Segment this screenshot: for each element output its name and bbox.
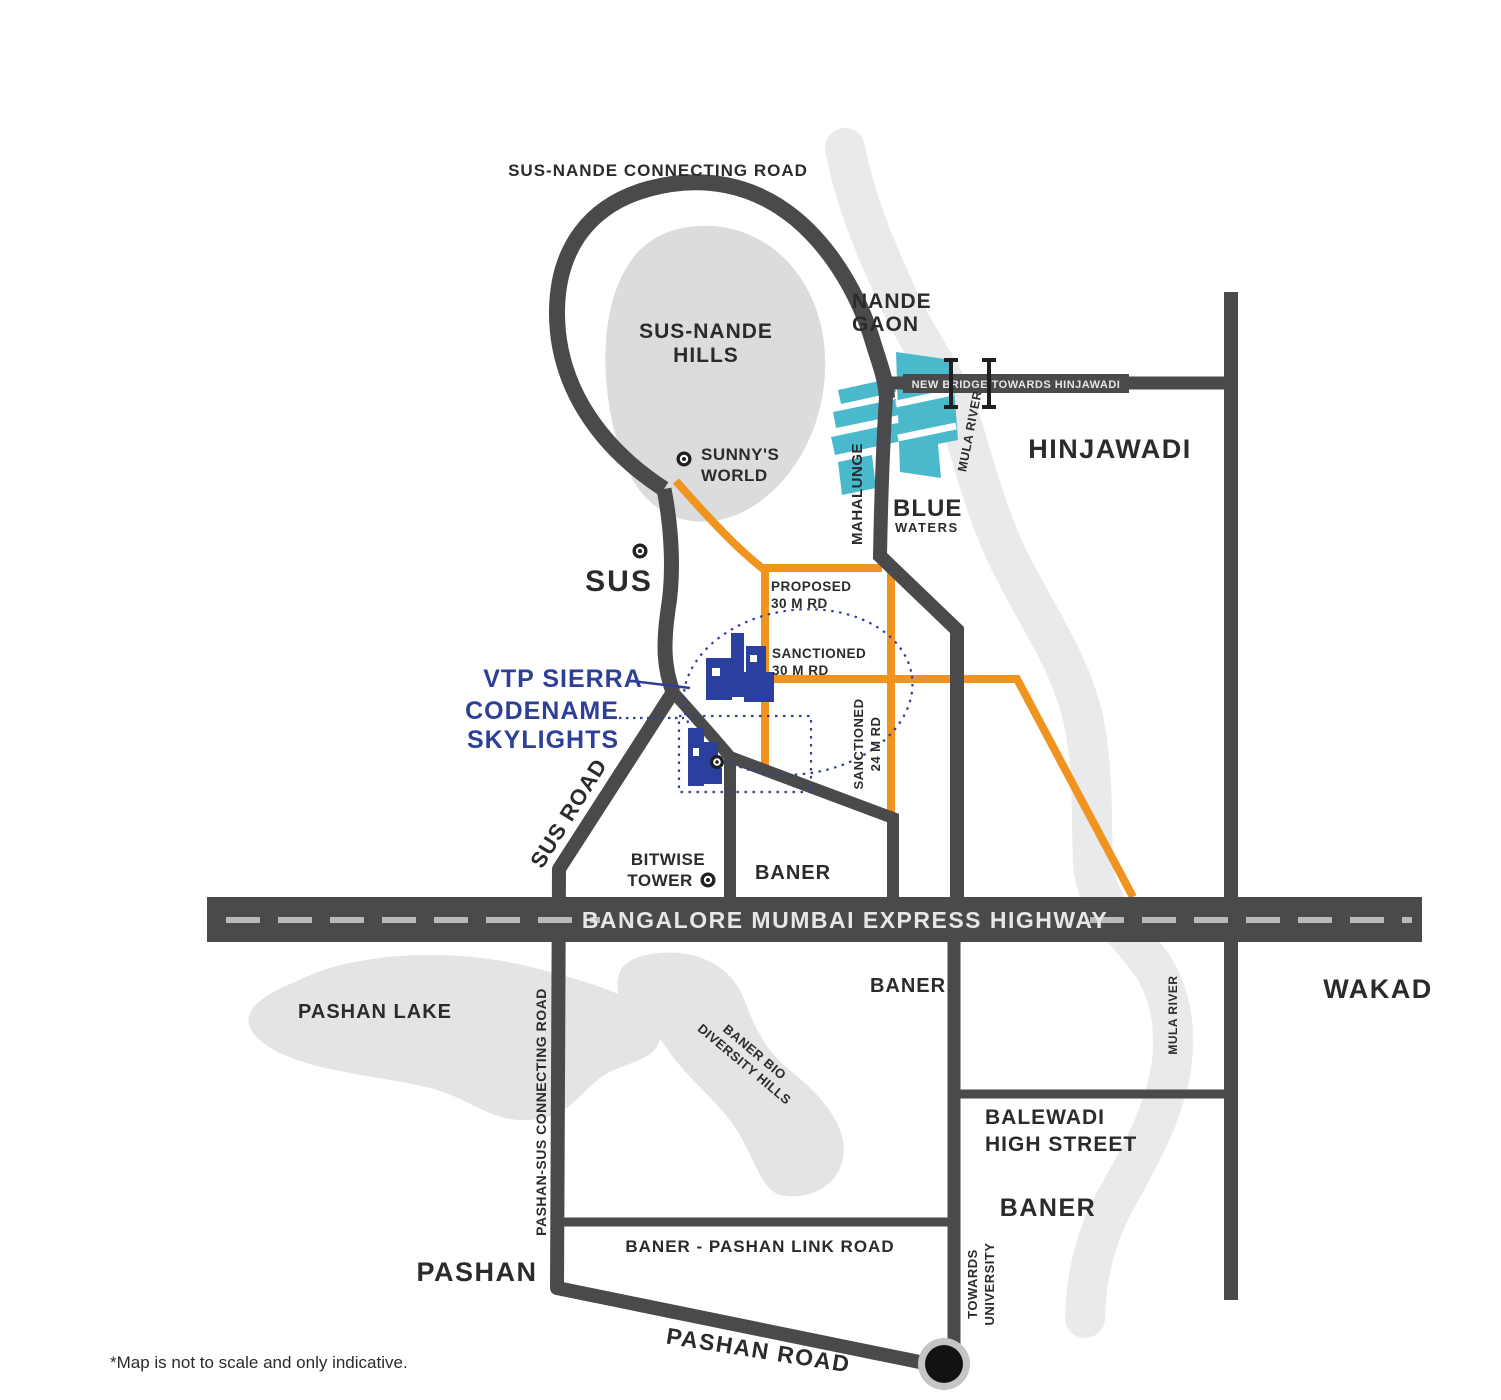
sus-label: SUS [585, 565, 653, 598]
baner-area-label: BANER [1000, 1194, 1096, 1222]
towards-university-label-1: TOWARDS [965, 1249, 980, 1319]
nande-gaon-label-1: NANDE [852, 290, 932, 313]
sus-nande-hills-label-2: HILLS [673, 344, 739, 367]
nande-gaon-label-2: GAON [852, 313, 919, 336]
baner-above-highway-label: BANER [755, 862, 831, 884]
sunnys-world-marker-icon [677, 452, 692, 467]
blue-waters-label-2: WATERS [895, 520, 959, 535]
baner-biodiversity-hills-area [618, 953, 844, 1197]
blue-waters-label-1: BLUE [893, 495, 962, 522]
highway: BANGALORE MUMBAI EXPRESS HIGHWAY [207, 897, 1422, 942]
baner-pashan-link-road-label: BANER - PASHAN LINK ROAD [625, 1237, 894, 1256]
wakad-label: WAKAD [1323, 974, 1433, 1004]
codename-skylights-label-1: CODENAME [465, 697, 619, 725]
blue-waters-stripe-3 [831, 423, 902, 455]
building-block [700, 768, 722, 784]
building-block [744, 672, 774, 702]
pashan-sus-connecting-road-label: PASHAN-SUS CONNECTING ROAD [533, 988, 549, 1236]
balewadi-high-street-label-1: BALEWADI [985, 1106, 1105, 1129]
building-window [693, 748, 699, 756]
location-map: BANGALORE MUMBAI EXPRESS HIGHWAY NEW BRI… [0, 0, 1501, 1400]
sanctioned-30m-label-1: SANCTIONED [772, 646, 866, 661]
sanctioned-24m-label-2: 24 M RD [868, 717, 883, 772]
vtp-sierra-label: VTP SIERRA [483, 665, 643, 693]
building-window [712, 668, 720, 676]
building-block [706, 658, 732, 700]
sunnys-world-label-2: WORLD [701, 466, 768, 485]
location-map-canvas: BANGALORE MUMBAI EXPRESS HIGHWAY NEW BRI… [0, 0, 1501, 1400]
mula-river-lower-label: MULA RIVER [1166, 975, 1180, 1054]
sus-marker-icon [633, 544, 648, 559]
mahalunge-label: MAHALUNGE [849, 443, 866, 545]
bitwise-tower-label-2: TOWER [627, 871, 692, 890]
codename-skylights-label-2: SKYLIGHTS [467, 726, 619, 754]
sus-nande-hills-label-1: SUS-NANDE [639, 320, 773, 343]
building-window [750, 655, 757, 662]
bitwise-tower-marker-icon [701, 873, 716, 888]
highway-label: BANGALORE MUMBAI EXPRESS HIGHWAY [582, 907, 1108, 933]
proposed-30m-label-1: PROPOSED [771, 579, 852, 594]
new-bridge-label: NEW BRIDGE TOWARDS HINJAWADI [912, 379, 1121, 391]
sus-village-road-path [664, 489, 673, 692]
proposed-30m-label-2: 30 M RD [771, 596, 828, 611]
pashan-lake-area [249, 955, 661, 1120]
pashan-label: PASHAN [416, 1257, 537, 1287]
sanctioned-24m-label-1: SANCTIONED [851, 699, 866, 790]
hinjawadi-label: HINJAWADI [1028, 434, 1192, 464]
pashan-road-junction-icon [918, 1338, 970, 1390]
sunnys-world-label-1: SUNNY'S [701, 445, 779, 464]
map-footnote: *Map is not to scale and only indicative… [110, 1353, 408, 1372]
bitwise-tower-label-1: BITWISE [631, 850, 705, 869]
sanctioned-30m-label-2: 30 M RD [772, 663, 829, 678]
pashan-lake-label: PASHAN LAKE [298, 1001, 452, 1023]
sus-nande-connecting-road-label: SUS-NANDE CONNECTING ROAD [508, 161, 808, 180]
baner-below-highway-label: BANER [870, 975, 946, 997]
site-marker-icon [710, 755, 724, 769]
balewadi-high-street-label-2: HIGH STREET [985, 1133, 1137, 1156]
towards-university-label-2: UNIVERSITY [982, 1242, 997, 1325]
building-block [731, 633, 744, 697]
blue-waters-main [896, 352, 958, 478]
